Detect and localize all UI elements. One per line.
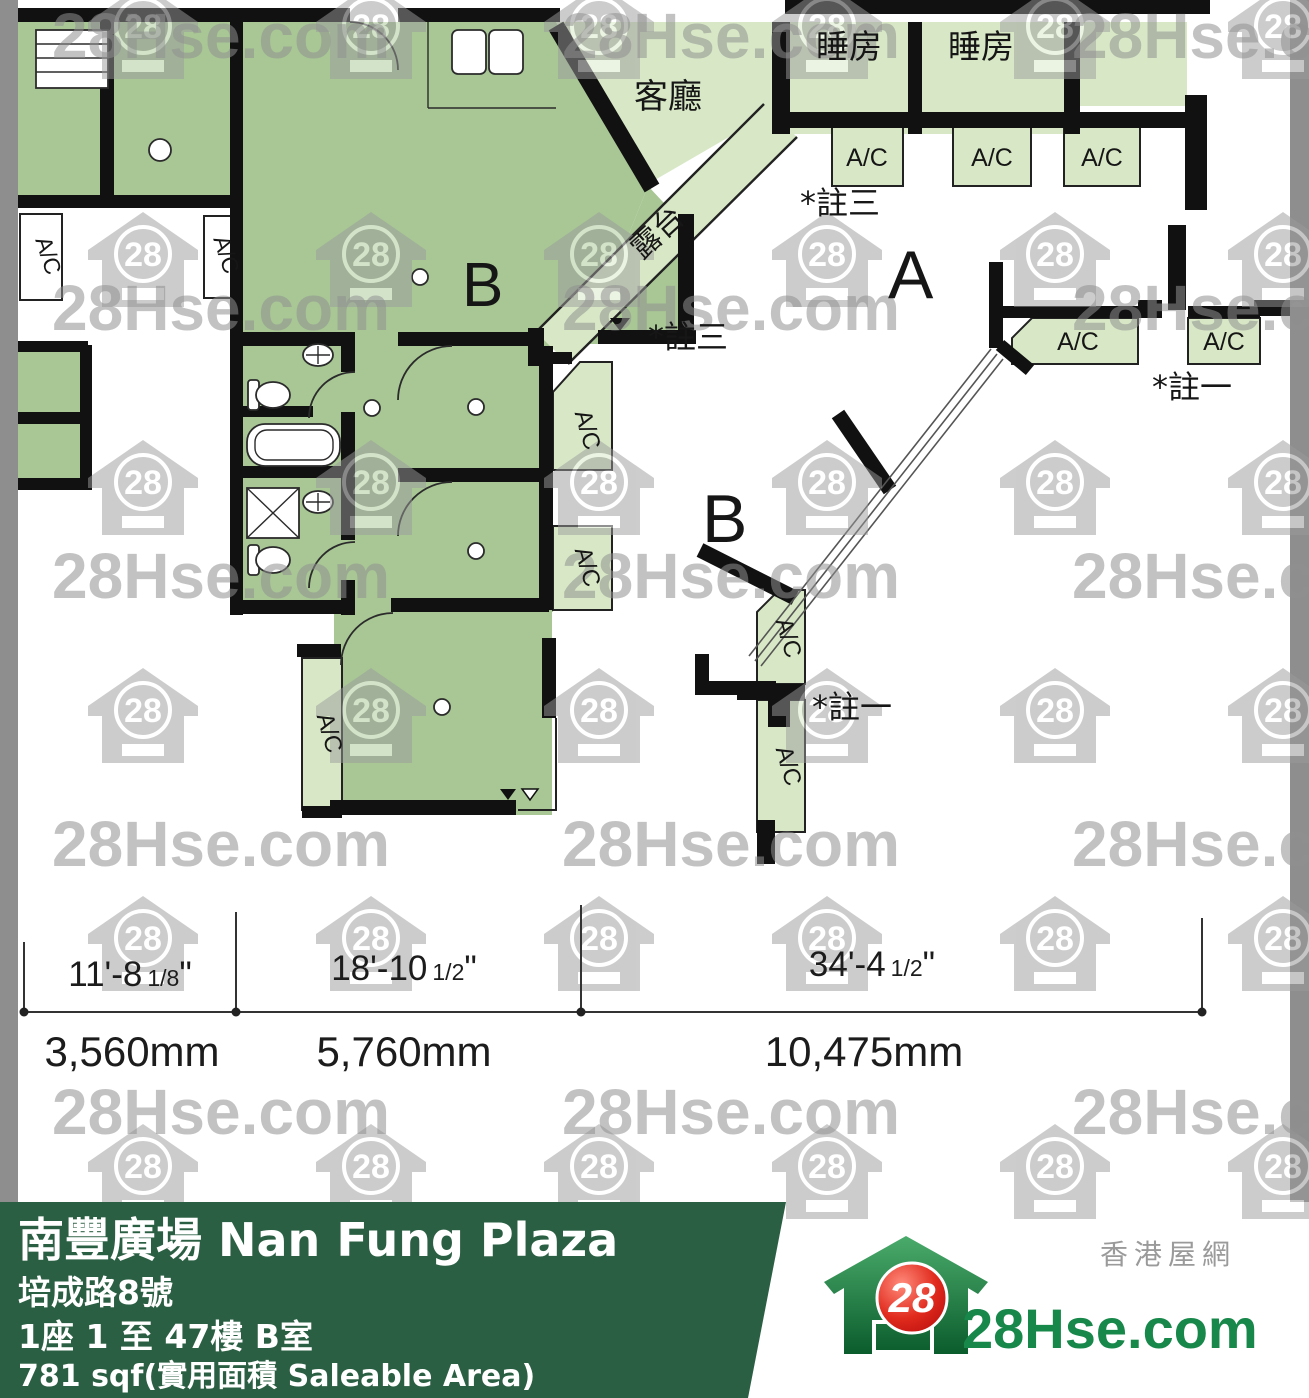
label-note-3: *註三 xyxy=(800,184,880,222)
label-room-b: B xyxy=(462,251,503,320)
label-bedroom-1: 睡房 xyxy=(816,27,882,66)
site-logo: 28 28Hse.com 香港屋網 xyxy=(824,1236,1258,1360)
label-note-1: *註一 xyxy=(1152,368,1232,406)
label-note-3: *註三 xyxy=(648,318,728,356)
footer-bar: 南豐廣場 Nan Fung Plaza 培成路8號 1座 1 至 47樓 B室 … xyxy=(0,1202,786,1398)
label-living-room: 客廳 xyxy=(634,77,702,117)
dim-mm-3: 10,475mm xyxy=(765,1028,963,1075)
kitchen-sink xyxy=(452,30,486,74)
logo-site-name: 28Hse.com xyxy=(962,1297,1258,1360)
floorplan-page: 28 28Hse.com xyxy=(0,0,1309,1398)
label-ac: A/C xyxy=(846,144,888,172)
dim-mm-2: 5,760mm xyxy=(316,1028,491,1075)
dim-mm-1: 3,560mm xyxy=(44,1028,219,1075)
dim-feet-2: 18'-101/2" xyxy=(331,949,477,988)
label-ac: A/C xyxy=(1203,328,1245,356)
label-ac: A/C xyxy=(1057,328,1099,356)
logo-badge-number: 28 xyxy=(888,1274,936,1321)
label-ac: A/C xyxy=(1081,144,1123,172)
label-ac: A/C xyxy=(971,144,1013,172)
toilet xyxy=(256,382,290,408)
label-note-1: *註一 xyxy=(812,688,892,726)
building-name: 南豐廣場 Nan Fung Plaza xyxy=(18,1213,618,1267)
label-unit-a: A xyxy=(888,237,934,313)
saleable-area: 781 sqf(實用面積 Saleable Area) xyxy=(18,1359,535,1394)
label-bedroom-2: 睡房 xyxy=(948,27,1014,66)
label-unit-b: B xyxy=(702,481,747,557)
dim-feet-3: 34'-41/2" xyxy=(809,945,935,984)
logo-tagline: 香港屋網 xyxy=(1100,1238,1236,1271)
floor-plan-svg: 28 28Hse.com xyxy=(0,0,1309,1398)
unit-info: 1座 1 至 47樓 B室 xyxy=(18,1317,313,1356)
building-address: 培成路8號 xyxy=(18,1273,173,1312)
